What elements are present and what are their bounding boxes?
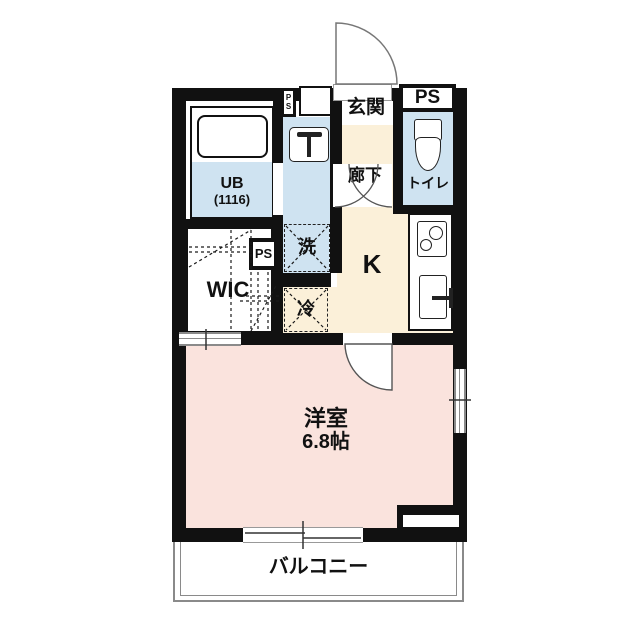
stove-burner-large — [429, 226, 443, 240]
pipe-shaft-box: P S — [281, 88, 296, 117]
wall-ub-wic — [186, 219, 283, 227]
ps-top-right-label: PS — [415, 88, 440, 109]
genkan-label: 玄関 — [336, 96, 396, 120]
hallway-floor — [342, 125, 393, 164]
toilet-label: トイレ — [403, 175, 453, 193]
balcony-sliding-window — [243, 527, 363, 543]
wall-right — [453, 88, 467, 542]
entrance-door-arc — [336, 23, 397, 84]
washbasin-faucet-stem — [307, 137, 311, 157]
kitchen-label: K — [352, 248, 392, 280]
window-left-midline — [179, 338, 241, 339]
ub-door-opening — [273, 163, 283, 215]
main-room-door-opening — [343, 333, 392, 345]
step-slot — [403, 515, 459, 527]
window-right-midline — [459, 369, 460, 433]
fridge-box: 冷 — [284, 288, 328, 332]
washer-box: 洗 — [284, 224, 330, 272]
fridge-label: 冷 — [295, 300, 317, 320]
floorplan: P S PS PS 洗 冷 玄関 廊下 トイレ UB (1116) — [0, 0, 640, 640]
ub-size-label: (1116) — [214, 193, 250, 207]
main-room-label: 洋室 6.8帖 — [246, 402, 406, 458]
sliding-pane-right — [303, 537, 361, 539]
window-left — [179, 332, 241, 346]
pipe-shaft-label-s: S — [286, 103, 291, 112]
hallway-label: 廊下 — [340, 166, 390, 186]
ps-mid-box: PS — [249, 238, 278, 270]
washer-label: 洗 — [296, 238, 318, 258]
meter-box — [299, 86, 332, 116]
window-right — [454, 369, 466, 433]
wall-washer-bottom — [281, 273, 331, 287]
wic-label: WIC — [192, 277, 264, 303]
wall-left — [172, 88, 186, 542]
ps-mid-label: PS — [255, 247, 272, 261]
ps-top-right-box: PS — [399, 84, 456, 112]
bathtub-icon — [197, 115, 268, 158]
ub-label: UB (1116) — [192, 169, 272, 213]
stove-burner-small — [420, 239, 432, 251]
sliding-pane-left — [245, 532, 305, 534]
wall-v1 — [273, 101, 283, 333]
kitchen-faucet-cap — [449, 288, 453, 308]
main-room-size-label: 6.8帖 — [302, 431, 350, 453]
balcony-label: バルコニー — [180, 554, 457, 580]
